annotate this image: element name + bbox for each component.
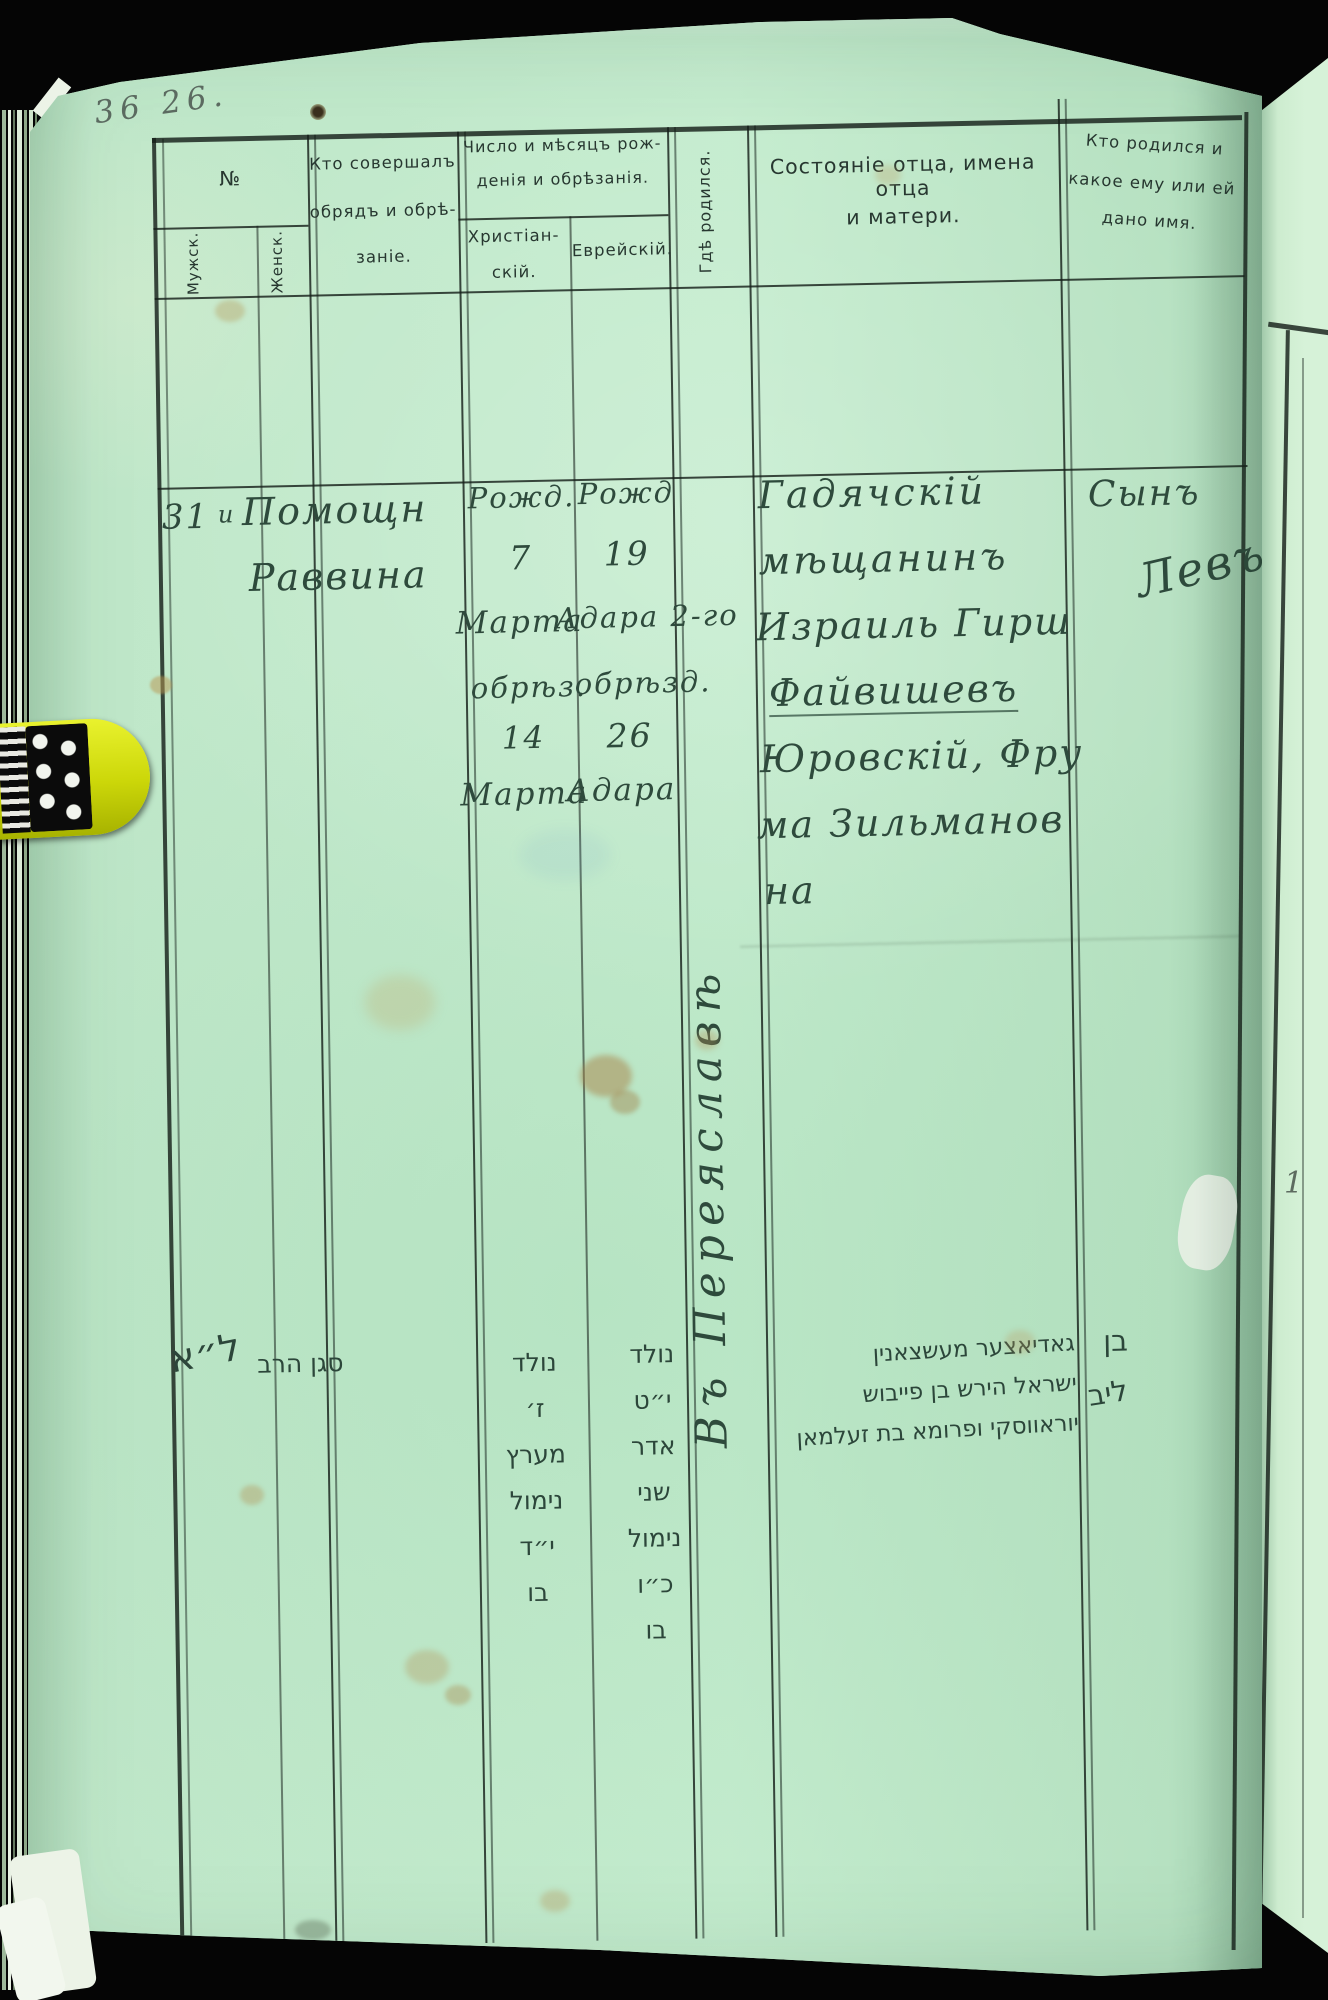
table-border-left xyxy=(152,138,184,1949)
page-stack-edge xyxy=(17,110,22,1990)
entry-father-line7: на xyxy=(764,868,816,913)
hebrew-margin-number: ל״א xyxy=(166,1324,245,1381)
header-col-officiant-line2: обрядъ и обрѣ- xyxy=(309,200,457,222)
entry-christian-born-day: 7 xyxy=(468,537,573,578)
header-col-dates-line1: Число и мѣсяцъ рож- xyxy=(458,133,666,156)
hebrew-christian-word5: י״ד xyxy=(482,1531,592,1562)
grid-vline-officiant-right xyxy=(457,132,487,1943)
hebrew-jewish-word3: אדר xyxy=(595,1430,710,1461)
hebrew-child-word2: ליב xyxy=(1086,1373,1131,1413)
entry-jewish-born-month: Адара 2-го xyxy=(555,598,739,636)
scanned-register-photo: 1 36 26. № Мужск. Женск. К xyxy=(0,0,1328,2000)
entry-jewish-born-label: Рожд xyxy=(577,475,674,511)
header-col-male: Мужск. xyxy=(183,231,202,295)
hebrew-jewish-word6: כ״ו xyxy=(598,1568,713,1599)
register-page: 36 26. № Мужск. Женск. Кто совершалъ обр xyxy=(0,0,1328,2000)
clip-dots-pattern xyxy=(25,723,92,832)
hebrew-child-word1: בן xyxy=(1103,1324,1128,1359)
entry-row-number: 31 xyxy=(162,497,210,538)
grid-hline-dates-sub xyxy=(458,214,668,220)
header-col-child: Кто родился и какое ему или ей дано имя. xyxy=(1060,129,1244,236)
hebrew-christian-word4: נימול xyxy=(481,1485,591,1516)
entry-father-line6: ма Зильманов xyxy=(757,797,1065,847)
next-page-border-v xyxy=(1258,330,1290,1920)
header-col-child-line2: какое ему или ей xyxy=(1062,168,1241,199)
hebrew-christian-word6: בו xyxy=(483,1577,593,1608)
entry-father-line5: Юровскій, Фру xyxy=(760,730,1084,781)
header-col-christian-line2: скій. xyxy=(460,261,568,282)
grid-vline-sex xyxy=(256,226,285,1947)
header-col-jewish: Еврейскій. xyxy=(572,239,668,260)
hebrew-jewish-word5: נימול xyxy=(597,1522,712,1553)
page-stack-edge xyxy=(13,110,15,1990)
hebrew-jewish-word7: בו xyxy=(598,1614,713,1645)
header-col-father-line2: и матери. xyxy=(749,201,1057,231)
header-col-officiant-line3: заніе. xyxy=(310,246,458,268)
next-page-rule-v xyxy=(1302,358,1304,1918)
page-stack-edge xyxy=(8,110,11,1990)
entry-jewish-circ-label: обрѣзд. xyxy=(574,664,711,701)
header-col-dates-line2: денія и обрѣзанія. xyxy=(459,167,667,190)
entry-father-line2: мѣщанинъ xyxy=(758,534,1008,583)
grid-vline-father-right xyxy=(1058,99,1089,1930)
header-col-child-line3: дано имя. xyxy=(1060,205,1239,236)
header-col-number: № xyxy=(152,165,307,192)
entry-jewish-circ-month: Адара xyxy=(566,771,677,809)
entry-father-line1: Гадячскій xyxy=(757,469,986,518)
header-col-father-line1: Состояніе отца, имена отца xyxy=(748,149,1057,203)
hebrew-officiant: סגן הרב xyxy=(257,1348,344,1379)
entry-jewish-born-day: 19 xyxy=(578,533,675,574)
next-page-border-h xyxy=(1268,322,1328,336)
entry-father-line4: Файвишевъ xyxy=(769,666,1019,717)
entry-christian-born-label: Рожд. xyxy=(467,479,572,515)
entry-row-mark: и xyxy=(218,500,236,528)
hebrew-jewish-word4: שני xyxy=(596,1476,711,1507)
next-page-edge: 1 xyxy=(1252,58,1328,1953)
header-col-officiant-line1: Кто совершалъ xyxy=(308,152,456,174)
hebrew-jewish-word2: י״ט xyxy=(595,1384,710,1415)
page-stack-edge xyxy=(24,110,27,1990)
header-col-where-born: Гдѣ родился. xyxy=(694,136,715,286)
entry-child-name: Левъ xyxy=(1131,526,1271,608)
entry-father-line3: Израиль Гирш xyxy=(756,599,1073,650)
header-col-female: Женск. xyxy=(267,229,286,293)
hebrew-father-block: גאדיאצער מעשצאנין ישראל הירש בן פייבוש י… xyxy=(762,1323,1080,1460)
grid-vline-no-right xyxy=(307,135,337,1946)
entry-christian-circ-day: 14 xyxy=(471,719,576,757)
entry-officiant-line1: Помощн xyxy=(242,486,428,534)
next-page-pencil-number: 1 xyxy=(1284,1166,1303,1201)
page-stack-edge xyxy=(2,110,6,1990)
grid-vline-dates-split xyxy=(569,216,598,1940)
grid-vline-where-right xyxy=(747,125,777,1936)
hebrew-jewish-word1: נולד xyxy=(594,1338,709,1369)
entry-officiant-line2: Раввина xyxy=(249,552,428,600)
table-grid: № Мужск. Женск. Кто совершалъ обрядъ и о… xyxy=(0,0,1328,2000)
hebrew-christian-word2: ז׳ xyxy=(480,1393,590,1424)
header-col-christian-line1: Христіан- xyxy=(459,225,567,246)
entry-jewish-circ-day: 26 xyxy=(581,715,678,756)
entry-child-sex: Сынъ xyxy=(1088,472,1201,515)
hebrew-christian-word1: נולד xyxy=(479,1347,589,1378)
entry-christian-circ-label: обрѣз. xyxy=(470,669,575,705)
entry-where-born: Въ Переяславѣ xyxy=(679,933,738,1449)
grid-hline-entry-top xyxy=(157,465,1247,490)
header-col-child-line1: Кто родился и xyxy=(1065,129,1244,160)
hebrew-christian-word3: מערץ xyxy=(481,1439,591,1470)
